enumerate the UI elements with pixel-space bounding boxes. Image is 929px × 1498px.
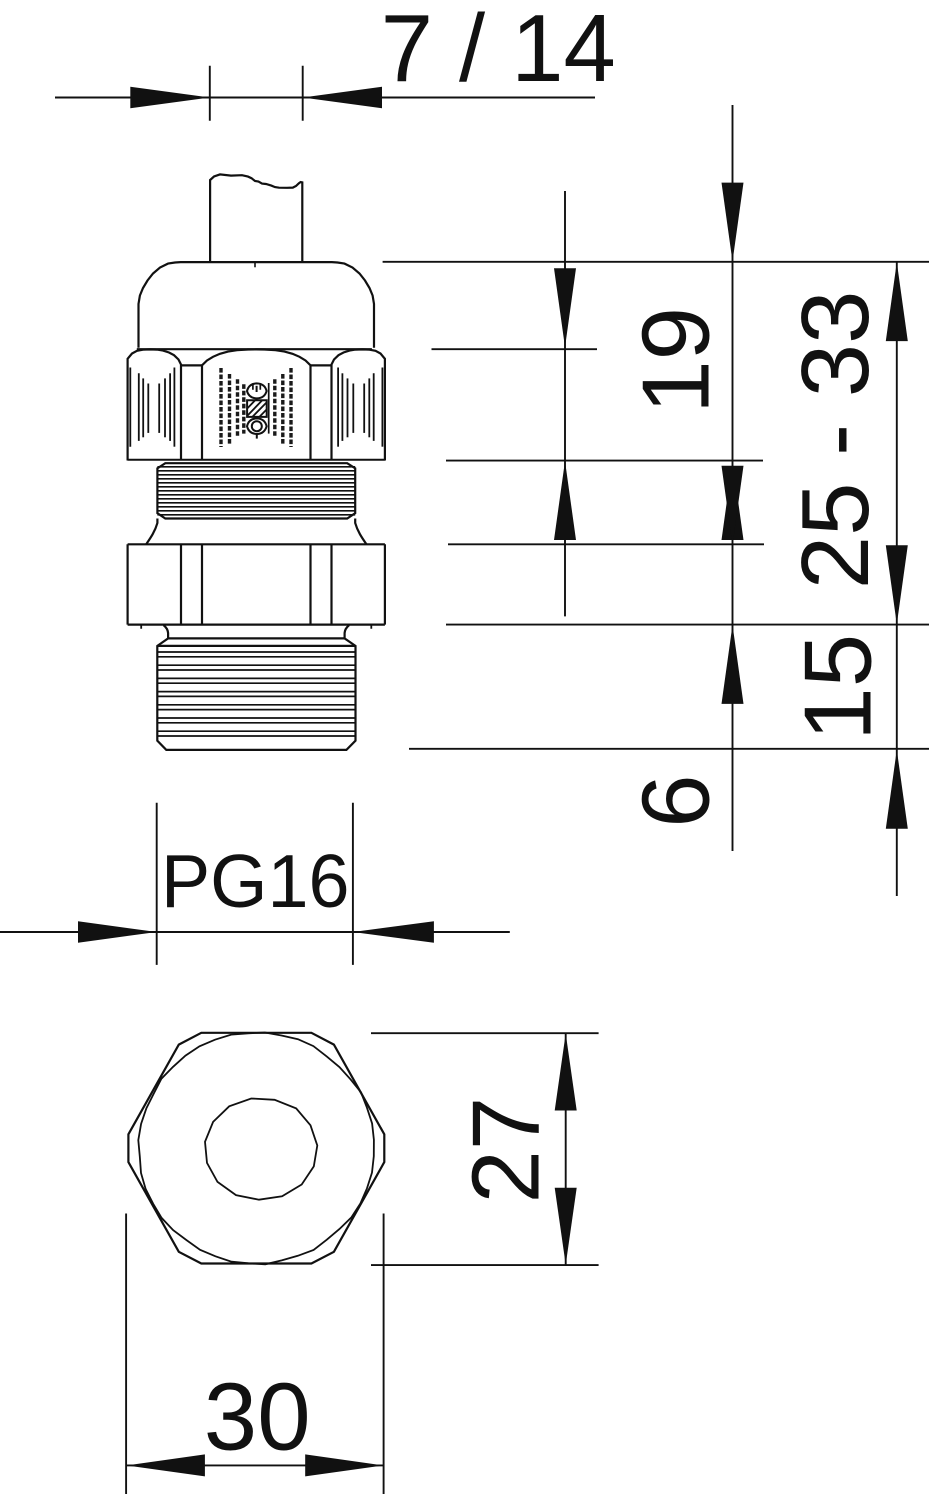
svg-text:19: 19 bbox=[623, 307, 730, 414]
svg-text:27: 27 bbox=[453, 1097, 560, 1204]
svg-text:7 / 14: 7 / 14 bbox=[381, 0, 616, 102]
svg-text:15: 15 bbox=[784, 634, 891, 741]
svg-text:30: 30 bbox=[204, 1364, 311, 1471]
svg-text:25 - 33: 25 - 33 bbox=[782, 290, 889, 589]
svg-text:PG16: PG16 bbox=[161, 839, 350, 923]
svg-text:6: 6 bbox=[623, 774, 730, 827]
